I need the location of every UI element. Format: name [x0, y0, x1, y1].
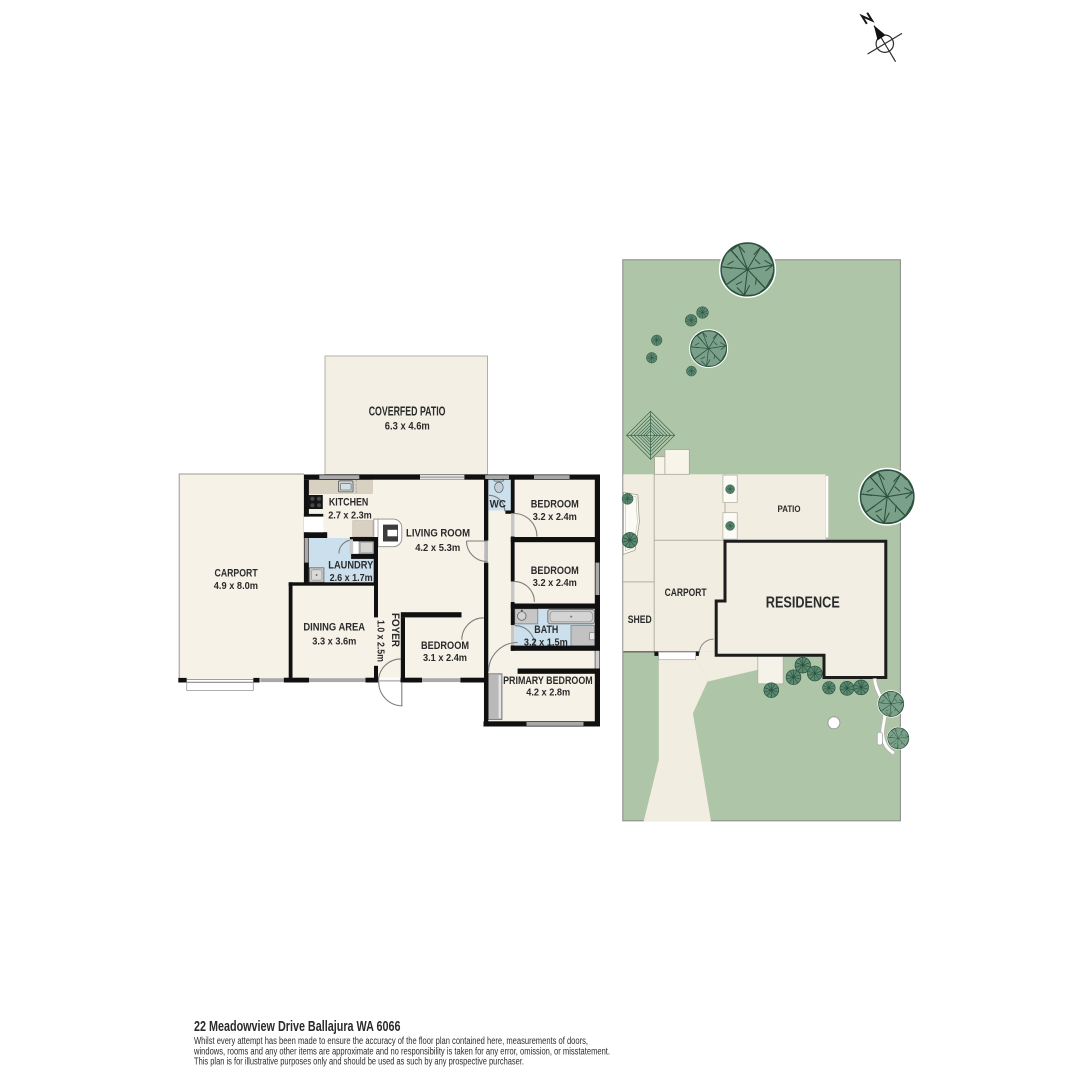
svg-text:BEDROOM: BEDROOM: [531, 565, 579, 577]
svg-text:3.2 x 1.5m: 3.2 x 1.5m: [524, 637, 568, 648]
svg-text:2.6 x 1.7m: 2.6 x 1.7m: [330, 573, 373, 584]
svg-text:LAUNDRY: LAUNDRY: [328, 560, 373, 572]
svg-text:SHED: SHED: [628, 614, 652, 626]
svg-text:4.9 x 8.0m: 4.9 x 8.0m: [214, 581, 258, 592]
svg-text:WC: WC: [490, 498, 507, 510]
svg-text:3.1 x 2.4m: 3.1 x 2.4m: [423, 653, 467, 664]
svg-text:LIVING ROOM: LIVING ROOM: [406, 528, 470, 540]
svg-text:DINING AREA: DINING AREA: [303, 622, 365, 634]
svg-text:4.2 x 5.3m: 4.2 x 5.3m: [415, 543, 460, 554]
svg-text:COVERFED PATIO: COVERFED PATIO: [369, 404, 446, 419]
svg-text:RESIDENCE: RESIDENCE: [766, 595, 840, 612]
svg-text:6.3 x 4.6m: 6.3 x 4.6m: [385, 421, 430, 433]
svg-text:1.0 x 2.5m: 1.0 x 2.5m: [375, 620, 386, 662]
svg-text:3.3 x 3.6m: 3.3 x 3.6m: [312, 636, 356, 647]
svg-text:4.2 x 2.8m: 4.2 x 2.8m: [526, 688, 570, 699]
svg-text:KITCHEN: KITCHEN: [329, 496, 369, 508]
svg-text:CARPORT: CARPORT: [215, 567, 259, 579]
svg-text:3.2 x 2.4m: 3.2 x 2.4m: [533, 578, 577, 589]
svg-text:BEDROOM: BEDROOM: [421, 640, 469, 652]
svg-text:2.7 x 2.3m: 2.7 x 2.3m: [328, 510, 372, 521]
svg-text:BEDROOM: BEDROOM: [531, 499, 579, 511]
svg-text:FOYER: FOYER: [389, 613, 401, 647]
svg-text:CARPORT: CARPORT: [665, 587, 707, 599]
svg-text:BATH: BATH: [534, 624, 558, 636]
svg-text:This plan is for illustrative: This plan is for illustrative purposes o…: [194, 1057, 524, 1068]
svg-text:PRIMARY BEDROOM: PRIMARY BEDROOM: [503, 675, 593, 687]
svg-text:22 Meadowview Drive Ballajura: 22 Meadowview Drive Ballajura WA 6066: [194, 1019, 401, 1035]
svg-text:3.2 x 2.4m: 3.2 x 2.4m: [533, 512, 577, 523]
svg-text:PATIO: PATIO: [778, 504, 801, 515]
